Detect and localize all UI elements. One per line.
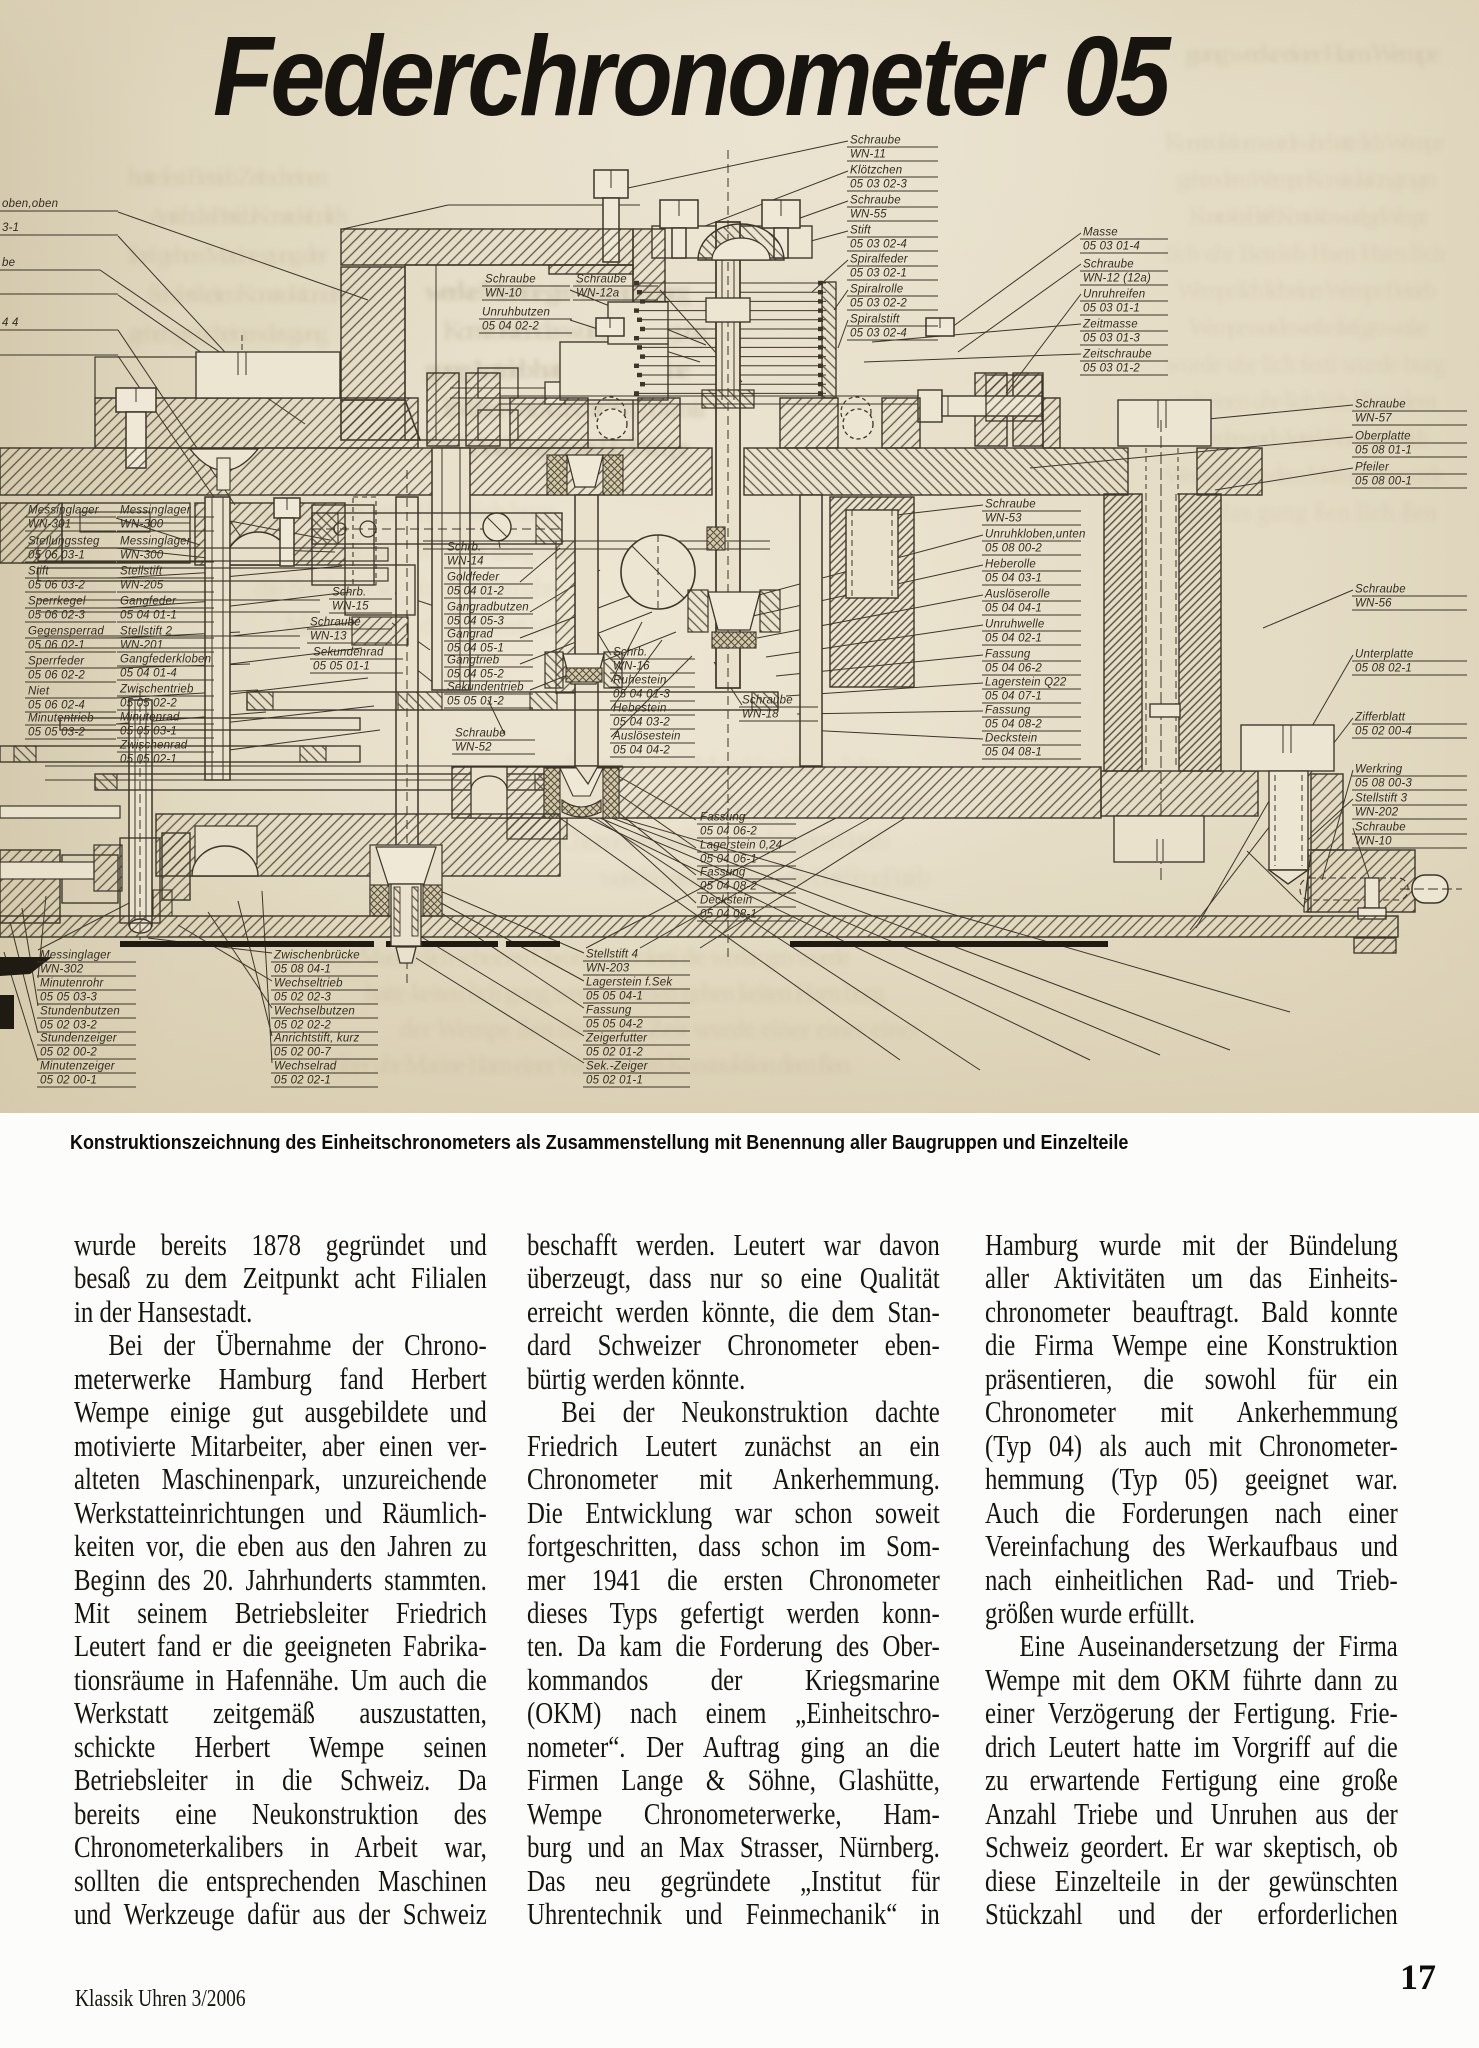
svg-text:05 04 01-2: 05 04 01-2 (447, 586, 504, 598)
svg-text:Stift: Stift (28, 566, 49, 578)
svg-text:hatte ferti Betrieb Zeit schei: hatte ferti Betrieb Zeit scheinen (128, 164, 329, 191)
svg-text:Wempe wurde werke ferti gro we: Wempe wurde werke ferti gro werke (1189, 315, 1429, 341)
svg-text:Schraube: Schraube (576, 274, 627, 286)
svg-text:Schraube: Schraube (455, 728, 506, 740)
svg-text:05 04 08-1: 05 04 08-1 (700, 909, 757, 921)
svg-text:05 03 02-4: 05 03 02-4 (850, 239, 907, 251)
svg-text:05 04 06-2: 05 04 06-2 (700, 826, 757, 838)
svg-text:05 05 02-1: 05 05 02-1 (120, 754, 177, 766)
svg-text:05 02 02-2: 05 02 02-2 (274, 1020, 331, 1032)
svg-text:05 03 02-2: 05 03 02-2 (850, 298, 907, 310)
svg-text:05 08 04-1: 05 08 04-1 (274, 964, 331, 976)
svg-text:05 05 03-3: 05 05 03-3 (40, 992, 97, 1004)
svg-text:Messinglager: Messinglager (120, 505, 192, 517)
svg-text:05 08 00-1: 05 08 00-1 (1355, 476, 1412, 488)
svg-text:05 03 02-4: 05 03 02-4 (850, 328, 907, 340)
svg-text:der Wempe ßen das burg Zeit wu: der Wempe ßen das burg Zeit wurde einer … (400, 1016, 921, 1043)
svg-text:WN-11: WN-11 (850, 149, 886, 161)
svg-text:WN-53: WN-53 (985, 513, 1022, 525)
svg-text:05 02 00-2: 05 02 00-2 (40, 1047, 97, 1059)
svg-text:WN-12 (12a): WN-12 (12a) (1083, 273, 1151, 285)
svg-text:Zeitmasse: Zeitmasse (1082, 319, 1138, 331)
svg-text:Wechseltrieb: Wechseltrieb (274, 978, 343, 990)
svg-text:05 02 00-1: 05 02 00-1 (40, 1075, 97, 1087)
svg-text:05 05 03-1: 05 05 03-1 (120, 726, 177, 738)
svg-text:05 04 08-2: 05 04 08-2 (700, 881, 757, 893)
svg-text:Gangradbutzen: Gangradbutzen (447, 602, 529, 614)
svg-text:05 08 00-3: 05 08 00-3 (1355, 778, 1412, 790)
svg-text:Zwischenrad: Zwischenrad (119, 740, 188, 752)
svg-text:Sekundenrad: Sekundenrad (313, 647, 384, 659)
svg-text:Spiralstift: Spiralstift (850, 314, 900, 326)
svg-text:WN-13: WN-13 (310, 631, 347, 643)
svg-text:WN-202: WN-202 (1355, 807, 1399, 819)
svg-text:Zifferblatt: Zifferblatt (1354, 712, 1406, 724)
svg-text:05 04 03-2: 05 04 03-2 (613, 717, 670, 729)
svg-text:Stellstift: Stellstift (120, 566, 163, 578)
svg-text:Schraube: Schraube (742, 695, 793, 707)
svg-text:05 06 02-1: 05 06 02-1 (28, 640, 85, 652)
svg-text:Stellstift 2: Stellstift 2 (120, 626, 173, 638)
svg-text:Schrb.: Schrb. (447, 542, 481, 554)
svg-text:WN-205: WN-205 (120, 580, 164, 592)
svg-text:05 08 00-2: 05 08 00-2 (985, 543, 1042, 555)
svg-text:05 04 04-1: 05 04 04-1 (985, 603, 1042, 615)
svg-text:Sekundentrieb: Sekundentrieb (447, 682, 524, 694)
svg-text:Schraube: Schraube (310, 617, 361, 629)
svg-text:05 06 02-4: 05 06 02-4 (28, 700, 85, 712)
svg-text:05 02 02-1: 05 02 02-1 (274, 1075, 331, 1087)
svg-text:WN-57: WN-57 (1355, 413, 1392, 425)
svg-text:WN-18: WN-18 (742, 709, 779, 721)
svg-text:Schraube: Schraube (485, 274, 536, 286)
svg-text:4 4: 4 4 (2, 317, 19, 329)
svg-text:WN-201: WN-201 (120, 640, 163, 652)
svg-text:Lagerstein 0,24: Lagerstein 0,24 (700, 840, 782, 852)
svg-text:Stift: Stift (850, 225, 871, 237)
svg-text:Ruhestein: Ruhestein (613, 675, 667, 687)
svg-text:05 03 02-3: 05 03 02-3 (850, 179, 907, 191)
svg-text:be: be (2, 257, 15, 269)
svg-text:05 06 03-1: 05 06 03-1 (28, 550, 85, 562)
svg-text:Fassung: Fassung (586, 1005, 632, 1017)
svg-text:05 04 03-1: 05 04 03-1 (985, 573, 1042, 585)
svg-text:05 02 03-2: 05 02 03-2 (40, 1020, 97, 1032)
svg-text:Werkring: Werkring (1355, 764, 1403, 776)
svg-text:Zwischenbrücke: Zwischenbrücke (273, 950, 360, 962)
svg-text:05 04 06-1: 05 04 06-1 (700, 854, 757, 866)
svg-text:05 06 02-3: 05 06 02-3 (28, 610, 85, 622)
svg-text:05 05 01-1: 05 05 01-1 (313, 661, 370, 673)
svg-text:Minutentrieb: Minutentrieb (28, 713, 94, 725)
svg-text:Unterplatte: Unterplatte (1355, 649, 1413, 661)
svg-text:Schraube: Schraube (1355, 584, 1406, 596)
svg-text:05 05 04-1: 05 05 04-1 (586, 991, 643, 1003)
svg-text:Unruhkloben,unten: Unruhkloben,unten (985, 529, 1086, 541)
svg-text:05 02 02-3: 05 02 02-3 (274, 992, 331, 1004)
svg-text:Zeigerfutter: Zeigerfutter (585, 1033, 648, 1045)
svg-text:Heberolle: Heberolle (985, 559, 1036, 571)
svg-text:Schrb.: Schrb. (332, 587, 366, 599)
svg-text:Konstruktion Betrieb Konstrukt: Konstruktion Betrieb Konstruktion wurde … (1189, 204, 1429, 230)
svg-text:05 04 05-1: 05 04 05-1 (447, 643, 504, 655)
svg-text:05 02 00-7: 05 02 00-7 (274, 1047, 331, 1059)
svg-text:WN-300: WN-300 (120, 519, 164, 531)
svg-text:Stellstift 4: Stellstift 4 (586, 949, 638, 961)
svg-text:Fassung: Fassung (700, 867, 746, 879)
svg-text:gehen gro scheinen das gung: gehen gro scheinen das gung (128, 320, 329, 347)
svg-text:Schraube: Schraube (1355, 399, 1406, 411)
svg-text:05 04 01-1: 05 04 01-1 (120, 610, 177, 622)
svg-text:05 04 04-2: 05 04 04-2 (613, 745, 670, 757)
svg-text:Schraube: Schraube (1083, 259, 1134, 271)
svg-text:oben,oben: oben,oben (2, 198, 58, 210)
svg-text:Messinglager: Messinglager (120, 536, 192, 548)
svg-text:05 03 01-1: 05 03 01-1 (1083, 303, 1140, 315)
svg-text:WN-301: WN-301 (28, 519, 71, 531)
svg-text:Gangtrieb: Gangtrieb (447, 655, 500, 667)
svg-text:ferti gehen Marine gung der: ferti gehen Marine gung der (128, 242, 329, 269)
svg-text:Schraube: Schraube (1355, 822, 1406, 834)
svg-text:WN-52: WN-52 (455, 742, 492, 754)
svg-text:Pfeiler: Pfeiler (1355, 462, 1390, 474)
svg-text:Schrb.: Schrb. (613, 647, 647, 659)
svg-text:gehen dem Wempe Konstruktion g: gehen dem Wempe Konstruktion gro gro (1177, 167, 1437, 193)
svg-text:lich uhr Betrieb Ham Ham lich: lich uhr Betrieb Ham Ham lich (1165, 241, 1445, 267)
svg-text:Zeitschraube: Zeitschraube (1082, 349, 1152, 361)
svg-text:WN-14: WN-14 (447, 556, 484, 568)
svg-text:Fassung: Fassung (985, 649, 1031, 661)
svg-text:05 08 01-1: 05 08 01-1 (1355, 445, 1412, 457)
svg-text:05 04 08-2: 05 04 08-2 (985, 719, 1042, 731)
svg-text:Auslösestein: Auslösestein (612, 731, 681, 743)
svg-text:Sperrfeder: Sperrfeder (28, 656, 85, 668)
svg-text:Deckstein: Deckstein (985, 733, 1037, 745)
svg-text:Minutenzeiger: Minutenzeiger (40, 1061, 116, 1073)
svg-text:05 06 02-2: 05 06 02-2 (28, 670, 85, 682)
svg-text:Deckstein: Deckstein (700, 895, 752, 907)
svg-text:Niet: Niet (28, 686, 50, 698)
svg-text:05 04 07-1: 05 04 07-1 (985, 691, 1042, 703)
svg-text:Sperrkegel: Sperrkegel (28, 596, 86, 608)
svg-text:05 04 02-2: 05 04 02-2 (482, 321, 539, 333)
svg-text:WN-56: WN-56 (1355, 598, 1392, 610)
svg-text:05 05 04-2: 05 05 04-2 (586, 1019, 643, 1031)
svg-text:WN-12a: WN-12a (576, 288, 619, 300)
svg-text:05 04 02-1: 05 04 02-1 (985, 633, 1042, 645)
svg-text:WN-10: WN-10 (485, 288, 522, 300)
svg-text:WN-302: WN-302 (40, 964, 84, 976)
svg-text:Spiralrolle: Spiralrolle (850, 284, 903, 296)
svg-text:Fassung: Fassung (985, 705, 1031, 717)
svg-text:05 03 01-4: 05 03 01-4 (1083, 241, 1140, 253)
svg-text:wurde uhr lich ferti wurde bur: wurde uhr lich ferti wurde burg (1165, 352, 1445, 378)
svg-text:WN-300: WN-300 (120, 550, 164, 562)
svg-text:Gangfederkloben: Gangfederkloben (120, 654, 211, 666)
svg-text:05 03 01-2: 05 03 01-2 (1083, 363, 1140, 375)
svg-text:Gangrad: Gangrad (447, 629, 494, 641)
svg-text:05 04 01-4: 05 04 01-4 (120, 668, 177, 680)
svg-text:Auslöserolle: Auslöserolle (984, 589, 1050, 601)
svg-text:05 03 02-1: 05 03 02-1 (850, 268, 907, 280)
svg-text:05 04 08-1: 05 04 08-1 (985, 747, 1042, 759)
svg-text:Spiralfeder: Spiralfeder (850, 254, 909, 266)
svg-text:Goldfeder: Goldfeder (447, 572, 500, 584)
svg-text:05 03 01-3: 05 03 01-3 (1083, 333, 1140, 345)
svg-text:WN-16: WN-16 (613, 661, 650, 673)
svg-text:Sek.-Zeiger: Sek.-Zeiger (586, 1061, 649, 1073)
svg-text:Stundenzeiger: Stundenzeiger (40, 1033, 118, 1045)
svg-text:WN-203: WN-203 (586, 963, 630, 975)
svg-text:Lagerstein f.Sek: Lagerstein f.Sek (586, 977, 673, 989)
svg-text:05 02 01-2: 05 02 01-2 (586, 1047, 643, 1059)
svg-text:Wechselbutzen: Wechselbutzen (274, 1006, 355, 1018)
svg-text:Unruhreifen: Unruhreifen (1083, 289, 1145, 301)
svg-text:3-1: 3-1 (2, 222, 19, 234)
svg-text:WN-15: WN-15 (332, 601, 369, 613)
svg-text:Stellstift 3: Stellstift 3 (1355, 793, 1408, 805)
svg-text:05 02 00-4: 05 02 00-4 (1355, 726, 1412, 738)
svg-text:05 06 03-2: 05 06 03-2 (28, 580, 85, 592)
svg-text:05 04 06-2: 05 04 06-2 (985, 663, 1042, 675)
svg-text:Oberplatte: Oberplatte (1355, 431, 1411, 443)
svg-text:Zwischentrieb: Zwischentrieb (119, 684, 194, 696)
svg-text:Minutenrad: Minutenrad (120, 712, 180, 724)
svg-text:Hebestein: Hebestein (613, 703, 667, 715)
svg-text:05 04 05-2: 05 04 05-2 (447, 669, 504, 681)
svg-text:05 04 05-3: 05 04 05-3 (447, 616, 504, 628)
svg-text:Messinglager: Messinglager (40, 950, 112, 962)
svg-text:Wempe lich lich einer Wempe Be: Wempe lich lich einer Wempe Betrieb (1177, 278, 1437, 304)
svg-text:Stundenbutzen: Stundenbutzen (40, 1006, 120, 1018)
svg-text:WN-55: WN-55 (850, 209, 887, 221)
svg-text:05 08 02-1: 05 08 02-1 (1355, 663, 1412, 675)
svg-text:Unruhbutzen: Unruhbutzen (482, 307, 550, 319)
svg-text:Gangfeder: Gangfeder (120, 596, 177, 608)
svg-text:Messinglager: Messinglager (28, 505, 100, 517)
svg-text:Konstruktion wurde uhr hatte l: Konstruktion wurde uhr hatte lich Wempe (1165, 130, 1445, 156)
svg-text:Lagerstein Q22: Lagerstein Q22 (985, 677, 1067, 689)
svg-text:Masse: Masse (1083, 227, 1118, 239)
svg-text:05 02 01-1: 05 02 01-1 (586, 1075, 643, 1087)
svg-text:Wechselrad: Wechselrad (274, 1061, 337, 1073)
svg-text:Unruhwelle: Unruhwelle (985, 619, 1045, 631)
svg-text:ßen ferti keiten Konstruktion: ßen ferti keiten Konstruktion uhr (148, 281, 349, 308)
svg-text:05 05 02-2: 05 05 02-2 (120, 698, 177, 710)
svg-text:Schraube: Schraube (985, 499, 1036, 511)
svg-text:Fassung: Fassung (700, 812, 746, 824)
svg-text:gung werke einer Ham Wempe: gung werke einer Ham Wempe (1185, 39, 1440, 68)
svg-text:05 04 01-3: 05 04 01-3 (613, 689, 670, 701)
svg-text:Klötzchen: Klötzchen (850, 165, 902, 177)
svg-text:05 05 01-2: 05 05 01-2 (447, 696, 504, 708)
svg-text:Minutenrohr: Minutenrohr (40, 978, 105, 990)
svg-text:Gegensperrad: Gegensperrad (28, 626, 104, 638)
svg-text:WN-10: WN-10 (1355, 836, 1392, 848)
svg-text:Stellungssteg: Stellungssteg (28, 536, 100, 548)
svg-text:Antrieb das Betrieb Konstrukti: Antrieb das Betrieb Konstruktion lich (148, 203, 349, 230)
svg-text:05 05 03-2: 05 05 03-2 (28, 727, 85, 739)
svg-text:Schraube: Schraube (850, 195, 901, 207)
svg-text:Anrichtstift, kurz: Anrichtstift, kurz (273, 1033, 359, 1045)
